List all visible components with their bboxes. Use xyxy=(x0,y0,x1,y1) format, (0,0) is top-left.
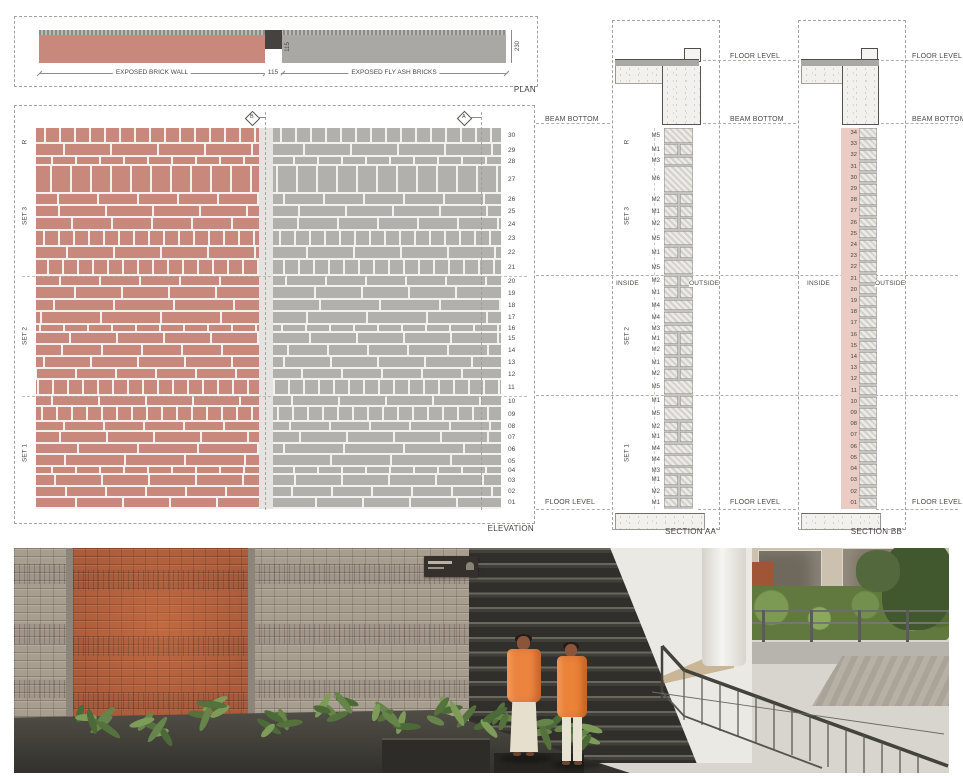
brick xyxy=(61,432,106,441)
brick xyxy=(245,157,259,164)
bb-course-number: 18 xyxy=(841,307,859,318)
course-number: 11 xyxy=(508,384,515,391)
elevation-course-row xyxy=(36,325,501,334)
brick xyxy=(173,157,195,164)
bb-course-row: 06 xyxy=(841,442,877,453)
bb-beam-bottom: BEAM BOTTOM xyxy=(912,116,963,123)
brick xyxy=(357,128,370,142)
brick xyxy=(162,247,207,258)
bb-course-row: 09 xyxy=(841,408,877,419)
bb-course-row: 22 xyxy=(841,262,877,273)
gray-brick-field xyxy=(273,194,501,206)
brick xyxy=(398,166,416,191)
elevation-course-row xyxy=(36,407,501,421)
bb-course-row: 17 xyxy=(841,318,877,329)
elevation-course-row xyxy=(36,467,501,475)
section-brick xyxy=(664,467,693,474)
brick xyxy=(53,467,75,473)
bb-brick-cell xyxy=(859,363,877,374)
brick xyxy=(343,467,365,473)
brick xyxy=(249,432,259,441)
brick xyxy=(238,407,251,419)
wall-junction-strip xyxy=(259,300,273,313)
bb-course-row: 34 xyxy=(841,128,877,139)
plan-fly-ash-wall xyxy=(282,35,506,63)
bb-course-row: 25 xyxy=(841,229,877,240)
brick xyxy=(319,157,341,164)
gray-brick-field xyxy=(273,247,501,260)
wall-junction-strip xyxy=(259,422,273,433)
red-brick-field xyxy=(36,144,259,157)
brick xyxy=(358,166,376,191)
brick xyxy=(368,312,426,323)
brick xyxy=(381,300,439,311)
section-brick xyxy=(859,408,877,418)
section-brick xyxy=(664,498,678,508)
brick xyxy=(125,467,147,473)
brick xyxy=(103,345,141,355)
brick xyxy=(273,325,281,332)
brick-mark-label: M1 xyxy=(638,333,664,345)
red-brick-field xyxy=(36,247,259,260)
brick xyxy=(183,345,221,355)
brick-mark-label: M1 xyxy=(638,206,664,219)
bb-course-number: 30 xyxy=(841,173,859,184)
brick xyxy=(139,194,177,204)
elevation-course-row xyxy=(36,432,501,443)
brick xyxy=(195,231,208,245)
brick-mark-label: M5 xyxy=(638,128,664,144)
brick xyxy=(419,218,457,228)
plan-exposed-brick-wall xyxy=(39,35,265,63)
brick-mark-label: M1 xyxy=(638,432,664,443)
brick-mark-label: M4 xyxy=(638,444,664,456)
set-label: SET 3 xyxy=(22,208,29,226)
brick xyxy=(84,380,97,393)
brick-mark-label: M1 xyxy=(638,357,664,369)
brick-mark-label: M3 xyxy=(638,467,664,475)
aa-brick-cell xyxy=(664,206,693,219)
course-number: 09 xyxy=(508,411,515,418)
wall-junction-strip xyxy=(259,144,273,157)
beam-bottom-label-1: BEAM BOTTOM xyxy=(545,116,599,123)
brick xyxy=(318,166,336,191)
brick xyxy=(367,276,405,286)
red-brick-field xyxy=(36,312,259,325)
brick xyxy=(415,467,437,473)
brick xyxy=(300,260,313,274)
gray-brick-field xyxy=(273,487,501,498)
bb-brick-cell xyxy=(859,341,877,352)
brick-mark-label: M2 xyxy=(638,194,664,206)
brick xyxy=(65,422,103,431)
aa-brick-cell xyxy=(664,166,693,193)
red-brick-field xyxy=(36,444,259,456)
section-brick xyxy=(859,352,877,362)
aa-brick-cell xyxy=(664,487,693,498)
bb-course-number: 17 xyxy=(841,318,859,329)
bb-course-number: 28 xyxy=(841,195,859,206)
brick xyxy=(303,369,341,379)
brick xyxy=(273,144,303,155)
bb-brick-cell xyxy=(859,139,877,150)
section-brick xyxy=(859,307,877,317)
aa-course-row: M2 xyxy=(638,487,693,498)
brick-mark-label: M3 xyxy=(638,325,664,334)
brick xyxy=(197,369,235,379)
brick xyxy=(139,357,184,367)
bb-course-row: 31 xyxy=(841,162,877,173)
brick xyxy=(36,218,71,228)
red-brick-field xyxy=(36,276,259,288)
brick xyxy=(273,444,283,454)
brick xyxy=(92,166,110,191)
section-brick xyxy=(859,173,877,183)
brick xyxy=(297,128,310,142)
brick xyxy=(123,287,168,297)
course-number: 14 xyxy=(508,347,515,354)
brick xyxy=(273,276,285,286)
brick xyxy=(199,260,212,274)
brick xyxy=(273,396,291,405)
aa-inside-label: INSIDE xyxy=(616,280,639,287)
bb-course-row: 07 xyxy=(841,430,877,441)
gray-brick-field xyxy=(273,218,501,230)
brick xyxy=(115,247,160,258)
brick xyxy=(162,312,220,323)
brick xyxy=(36,312,40,323)
boy-foot xyxy=(513,752,521,756)
brick xyxy=(94,260,107,274)
brick-mark-label: M1 xyxy=(638,396,664,407)
brick xyxy=(77,498,122,507)
brick xyxy=(206,144,251,155)
red-brick-field xyxy=(36,487,259,498)
brick xyxy=(65,325,87,332)
plan-fly-ash-label: EXPOSED FLY ASH BRICKS xyxy=(348,69,439,76)
brick xyxy=(301,432,346,441)
bb-brick-cell xyxy=(859,330,877,341)
section-brick xyxy=(859,498,877,508)
railing-top-rail xyxy=(662,646,948,766)
bb-course-number: 23 xyxy=(841,251,859,262)
course-number: 19 xyxy=(508,290,515,297)
brick xyxy=(365,380,378,393)
brick xyxy=(390,475,435,484)
brick xyxy=(53,396,98,405)
brick xyxy=(54,380,67,393)
elevation-set-labels: RSET 3SET 2SET 1 xyxy=(15,128,35,509)
brick xyxy=(147,487,185,496)
brick xyxy=(79,260,92,274)
brick xyxy=(273,300,319,311)
brick xyxy=(154,206,199,217)
brick-mark-label: M5 xyxy=(638,231,664,247)
soldier-course-band xyxy=(73,636,248,656)
course-number: 22 xyxy=(508,249,515,256)
brick xyxy=(294,407,307,419)
brick xyxy=(77,467,99,473)
brick xyxy=(58,407,71,419)
wall-junction-strip xyxy=(259,206,273,219)
wall-junction-strip xyxy=(259,128,273,144)
section-brick xyxy=(664,422,678,431)
brick xyxy=(273,157,293,164)
brick xyxy=(273,369,301,379)
aa-brick-cell xyxy=(664,325,693,334)
gray-brick-field xyxy=(273,345,501,357)
bb-brick-cell xyxy=(859,442,877,453)
brick xyxy=(444,407,457,419)
course-number: 23 xyxy=(508,235,515,242)
bb-brick-cell xyxy=(859,453,877,464)
bb-course-row: 24 xyxy=(841,240,877,251)
bb-brick-cell xyxy=(859,251,877,262)
brick xyxy=(225,422,259,431)
red-brick-field xyxy=(36,157,259,166)
brick xyxy=(193,218,231,228)
gray-brick-field xyxy=(273,455,501,467)
brick xyxy=(459,218,497,228)
elevation-course-row xyxy=(36,498,501,509)
brick xyxy=(420,260,433,274)
course-number: 28 xyxy=(508,158,515,165)
section-aa-drawing: M5M1M3M6M2M1M2M5M1M5M2M1M4M4M3M1M2M1M2M5… xyxy=(612,20,720,530)
brick xyxy=(339,218,377,228)
brick xyxy=(416,231,429,245)
brick xyxy=(252,166,259,191)
brick xyxy=(101,467,123,473)
photo-tree-foliage xyxy=(856,550,900,592)
brick xyxy=(452,333,497,343)
brick xyxy=(425,380,438,393)
brick xyxy=(429,407,442,419)
course-number: 13 xyxy=(508,359,515,366)
section-brick xyxy=(664,333,678,343)
wall-junction-strip xyxy=(259,260,273,276)
brick xyxy=(273,333,309,343)
elevation-course-row xyxy=(36,444,501,456)
brick xyxy=(143,345,181,355)
brick xyxy=(36,166,50,191)
aa-course-row: M1 xyxy=(638,475,693,486)
section-brick xyxy=(680,345,694,355)
course-number: 27 xyxy=(508,176,515,183)
brick xyxy=(296,475,341,484)
brick xyxy=(186,455,244,465)
brick xyxy=(59,194,97,204)
brick xyxy=(73,218,111,228)
aa-brick-cell xyxy=(664,345,693,357)
brick xyxy=(52,166,70,191)
brick xyxy=(350,380,363,393)
brick-mark-label: M4 xyxy=(638,300,664,313)
photo-guardrail-bottom xyxy=(740,622,949,624)
brick xyxy=(477,128,490,142)
brick xyxy=(73,407,86,419)
section-marker-b-letter: B xyxy=(250,114,254,120)
brick xyxy=(210,231,223,245)
section-brick xyxy=(680,333,694,343)
brick xyxy=(61,276,99,286)
aa-course-row: M3 xyxy=(638,467,693,475)
section-brick xyxy=(680,287,694,297)
wall-junction-strip xyxy=(259,287,273,299)
brick xyxy=(399,407,412,419)
brick xyxy=(499,325,501,332)
set-label: SET 1 xyxy=(624,444,631,462)
brick xyxy=(338,166,356,191)
brick xyxy=(278,166,296,191)
bb-course-number: 31 xyxy=(841,162,859,173)
section-brick xyxy=(859,206,877,216)
wall-junction-strip xyxy=(259,455,273,467)
brick xyxy=(352,144,397,155)
bb-brick-cell xyxy=(859,296,877,307)
brick xyxy=(117,369,155,379)
bb-course-row: 05 xyxy=(841,453,877,464)
brick xyxy=(289,345,327,355)
brick xyxy=(223,345,259,355)
elevation-course-row xyxy=(36,380,501,395)
elevation-course-row xyxy=(36,247,501,260)
brick xyxy=(485,380,498,393)
brick xyxy=(189,380,202,393)
brick xyxy=(107,206,152,217)
bb-brick-cell xyxy=(859,162,877,173)
section-marker-a-letter: A xyxy=(462,114,466,120)
bb-course-number: 13 xyxy=(841,363,859,374)
bb-brick-cell xyxy=(859,419,877,430)
gray-brick-field xyxy=(273,166,501,193)
floor-level-line-bot-elev xyxy=(536,509,610,510)
brick xyxy=(402,247,447,258)
brick xyxy=(379,325,401,332)
brick xyxy=(391,157,413,164)
elevation-course-row xyxy=(36,369,501,381)
brick xyxy=(36,498,75,507)
bb-brick-cell xyxy=(859,352,877,363)
brick xyxy=(118,333,163,343)
course-number: 24 xyxy=(508,221,515,228)
bb-course-number: 25 xyxy=(841,229,859,240)
aa-course-row: M1 xyxy=(638,144,693,157)
brick xyxy=(165,333,210,343)
section-brick xyxy=(664,407,693,420)
brick xyxy=(360,260,373,274)
gray-brick-field xyxy=(273,333,501,345)
photo-guardrail-top xyxy=(740,610,949,612)
brick xyxy=(296,231,309,245)
brick xyxy=(273,487,291,496)
bb-floor-level-bottom: FLOOR LEVEL xyxy=(912,499,962,506)
section-brick xyxy=(859,184,877,194)
bb-course-row: 29 xyxy=(841,184,877,195)
brick xyxy=(219,380,232,393)
aa-brick-cell xyxy=(664,260,693,276)
brick xyxy=(248,206,259,217)
aa-course-row: M1 xyxy=(638,287,693,299)
gray-brick-field xyxy=(273,325,501,334)
aa-course-row: M5 xyxy=(638,128,693,144)
brick xyxy=(305,380,318,393)
brick xyxy=(369,345,407,355)
elevation-course-row xyxy=(36,231,501,247)
course-number: 26 xyxy=(508,196,515,203)
brick xyxy=(379,218,417,228)
brick xyxy=(311,231,324,245)
brick xyxy=(221,276,259,286)
brick xyxy=(392,455,450,465)
dim-tick xyxy=(504,71,510,77)
brick xyxy=(227,487,259,496)
section-brick xyxy=(859,363,877,373)
brick xyxy=(365,194,403,204)
brick xyxy=(339,407,352,419)
bb-course-number: 04 xyxy=(841,464,859,475)
brick xyxy=(432,128,445,142)
brick xyxy=(149,467,171,473)
brick xyxy=(475,325,497,332)
aa-set-labels: RSET 3SET 2SET 1 xyxy=(621,128,633,509)
gray-brick-field xyxy=(273,444,501,456)
aa-brick-cell xyxy=(664,194,693,206)
bb-course-number: 14 xyxy=(841,352,859,363)
brick xyxy=(273,455,330,465)
brick xyxy=(106,128,119,142)
brick xyxy=(402,128,415,142)
brick xyxy=(451,422,489,431)
brick xyxy=(232,166,250,191)
section-brick xyxy=(859,251,877,261)
brick xyxy=(399,144,444,155)
brick xyxy=(367,157,389,164)
wall-junction-strip xyxy=(259,487,273,498)
section-brick xyxy=(859,341,877,351)
brick-mark-label: M4 xyxy=(638,455,664,467)
section-brick xyxy=(859,240,877,250)
brick xyxy=(458,166,476,191)
brick xyxy=(273,475,294,484)
section-brick xyxy=(680,487,694,496)
course-number: 10 xyxy=(508,398,515,405)
brick xyxy=(46,128,59,142)
brick xyxy=(327,276,365,286)
brick xyxy=(446,231,459,245)
aa-brick-cell xyxy=(664,231,693,247)
sign-emblem-icon xyxy=(466,562,474,570)
aa-course-row: M4 xyxy=(638,312,693,325)
brick xyxy=(447,128,460,142)
gray-brick-field xyxy=(273,276,501,288)
brick xyxy=(112,144,157,155)
bb-course-row: 04 xyxy=(841,464,877,475)
brick xyxy=(201,206,246,217)
site-photograph xyxy=(14,548,949,773)
brick xyxy=(240,231,253,245)
brick xyxy=(476,231,489,245)
brick xyxy=(273,287,314,297)
brick xyxy=(175,300,233,311)
brick xyxy=(36,231,43,245)
brick xyxy=(285,357,330,367)
aa-course-row: M2 xyxy=(638,422,693,433)
brick xyxy=(325,194,363,204)
brick xyxy=(151,128,164,142)
brick xyxy=(241,396,259,405)
gray-brick-field xyxy=(273,287,501,299)
brick xyxy=(109,260,122,274)
